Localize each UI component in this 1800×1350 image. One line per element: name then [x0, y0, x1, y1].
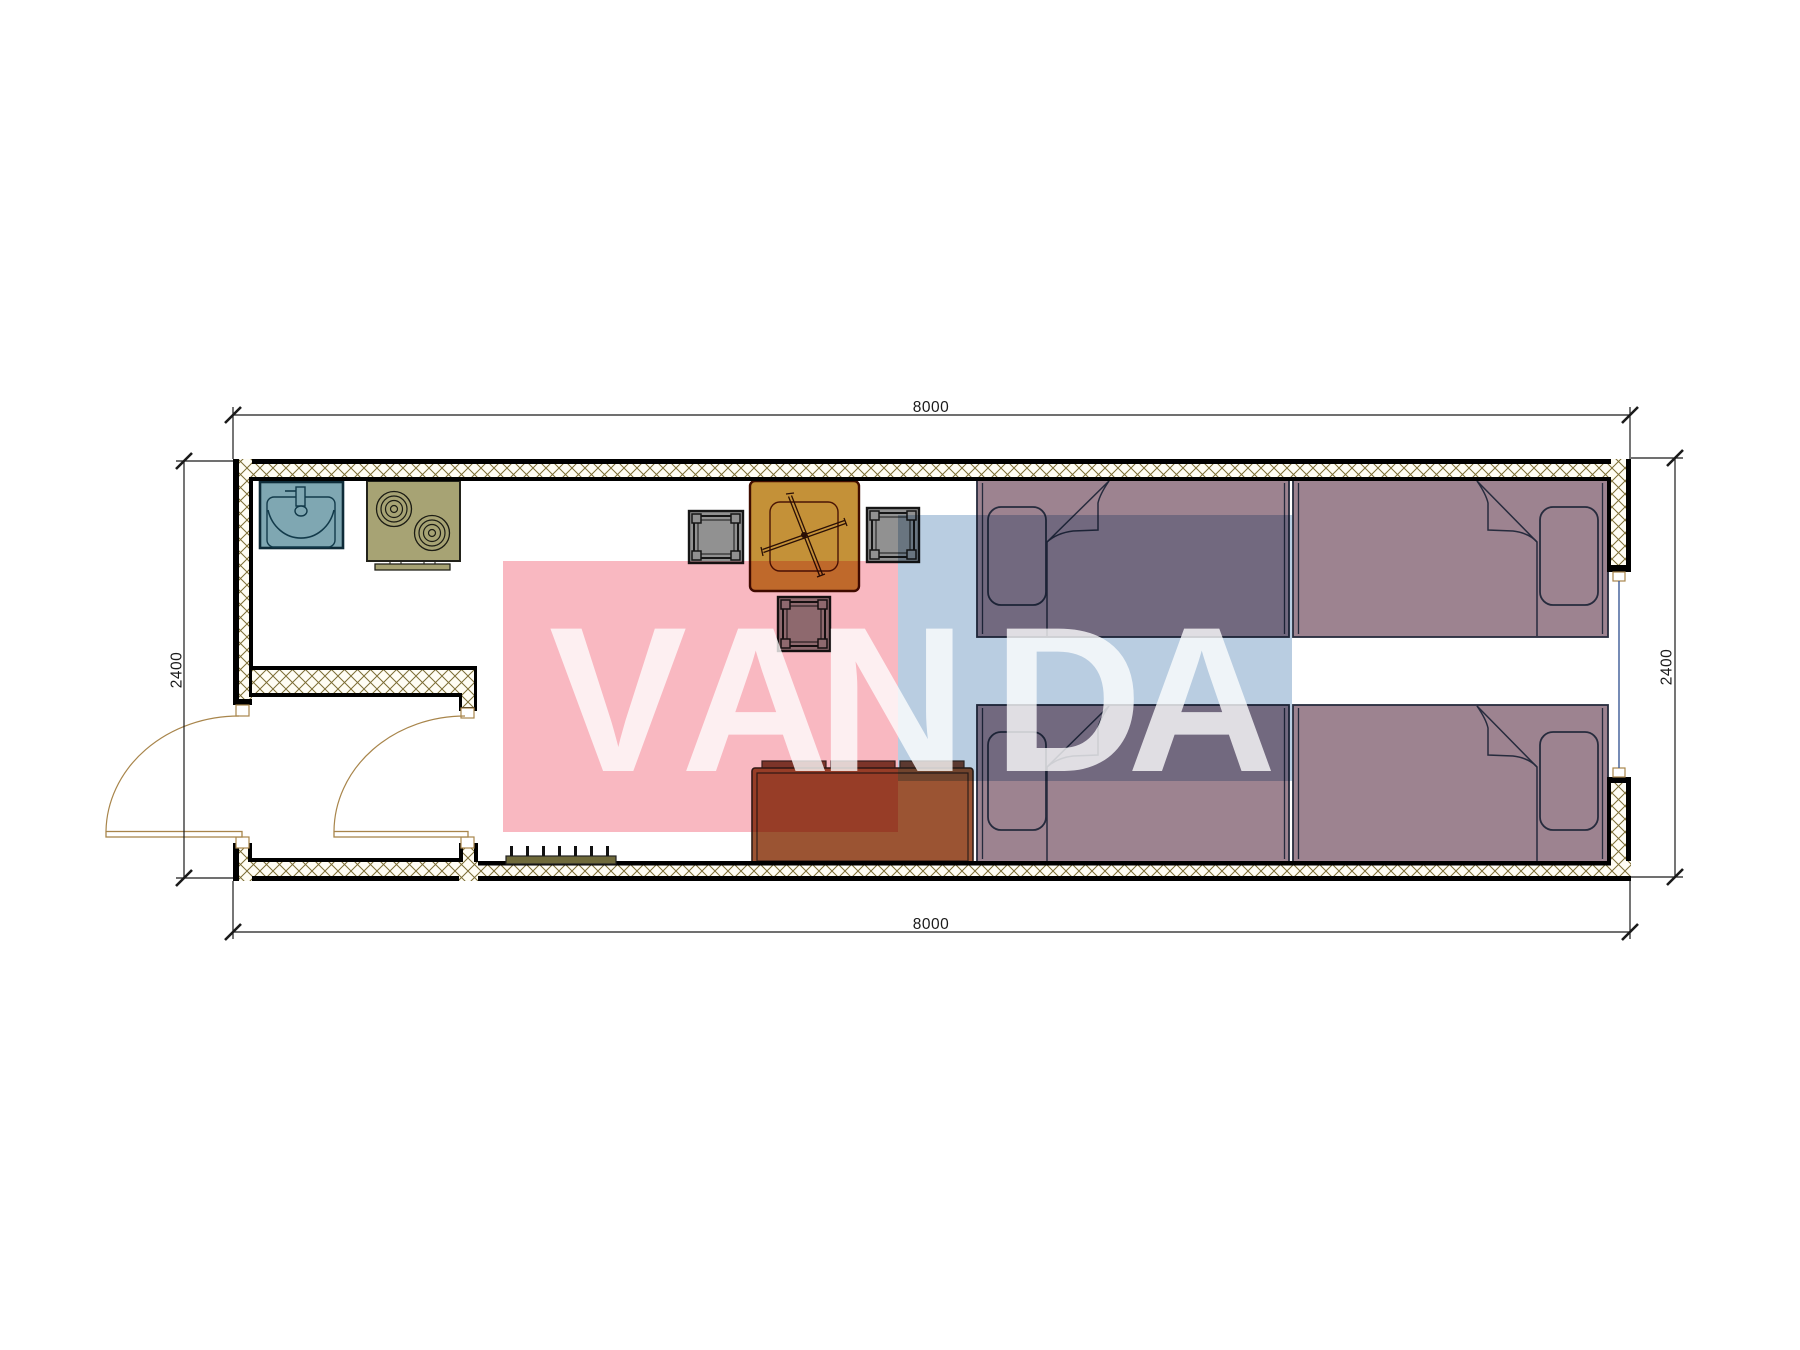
svg-text:D: D — [993, 584, 1143, 815]
svg-text:8000: 8000 — [913, 916, 949, 933]
svg-text:A: A — [1127, 584, 1277, 815]
svg-text:2400: 2400 — [1659, 649, 1676, 685]
svg-text:2400: 2400 — [169, 652, 186, 688]
svg-text:V: V — [549, 584, 687, 815]
svg-text:8000: 8000 — [913, 399, 949, 416]
svg-text:N: N — [817, 584, 967, 815]
svg-text:A: A — [681, 584, 831, 815]
